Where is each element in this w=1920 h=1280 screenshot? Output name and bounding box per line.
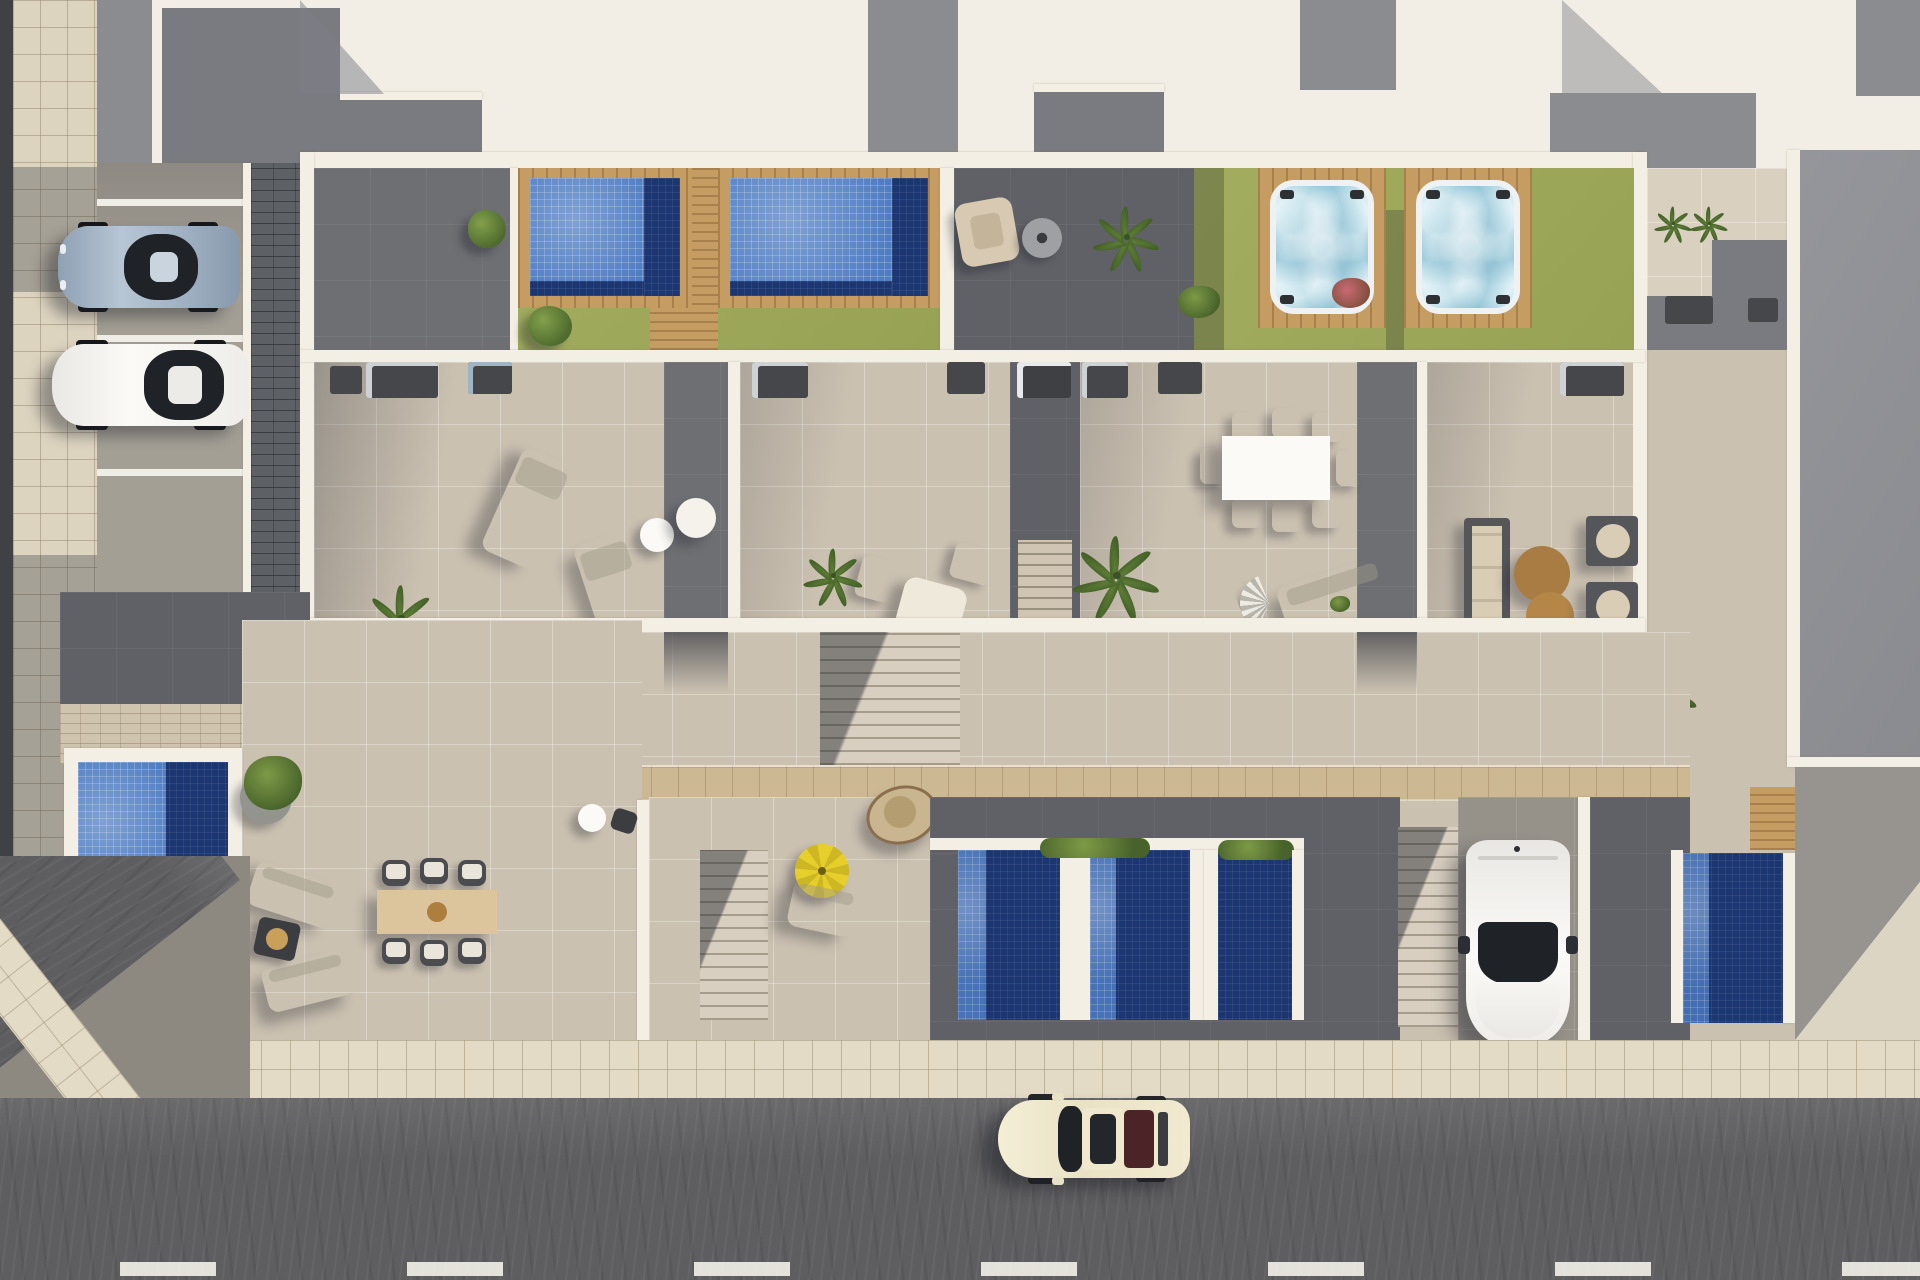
mosaic-pool-1-deep [644, 178, 680, 296]
car-rear-hatch-line [1478, 856, 1558, 860]
table-centerpiece [427, 902, 447, 922]
patio-palm [1095, 205, 1157, 267]
sofa-cushions [1472, 526, 1502, 632]
outdoor-kitchen [1017, 362, 1071, 398]
patio-lounge-cushion [969, 212, 1004, 251]
outdoor-kitchen [330, 366, 362, 394]
unit1-garden-wall [510, 168, 518, 350]
pouf-round [676, 498, 716, 538]
jacuzzi-lawn-shadow [1194, 168, 1224, 350]
mosaic-pool-2-deep [892, 178, 928, 296]
fire-table-tray [266, 928, 288, 950]
alley-1-wall [728, 362, 740, 632]
outdoor-kitchen [1158, 362, 1202, 394]
wicker-chair [458, 860, 486, 886]
fire-bowl [1022, 218, 1062, 258]
alley-1 [664, 362, 728, 632]
jacuzzi-headrest [1350, 190, 1364, 199]
car-mirror [1458, 936, 1470, 954]
dining-chair [1232, 498, 1262, 528]
central-staircase [820, 632, 960, 765]
palm-core [1708, 222, 1711, 225]
pool-divider-wall [1671, 850, 1683, 1023]
bistro-table-white [578, 804, 606, 832]
parking-stall-line-3 [97, 469, 243, 476]
right-gray-roof [1800, 150, 1920, 757]
jacuzzi-headrest [1496, 190, 1510, 199]
lawn-tree [528, 306, 572, 346]
plunge-pool-4-edge [1683, 853, 1709, 1023]
right-wood-steps [1750, 787, 1800, 850]
units-left-wall [300, 152, 314, 632]
armchair-cushion [1596, 524, 1630, 558]
wicker-chair [382, 860, 410, 886]
dining-chair [1336, 450, 1362, 486]
parasol-pole-dot [818, 867, 826, 875]
dining-chair [1312, 498, 1342, 528]
garden-terrace-wall [300, 350, 1645, 362]
pool-divider-wall [1190, 850, 1204, 1020]
car-windshield [1058, 1106, 1084, 1172]
egg-chair-cushion [884, 796, 916, 828]
car-rear-grille [1158, 1112, 1168, 1166]
corner-unit-east-wall [637, 800, 649, 1040]
street-dashed-line [120, 1262, 1920, 1276]
car-roof-panel [168, 366, 202, 404]
right-roof-bottom-wall [1787, 757, 1920, 767]
plunge-pool-3 [1218, 850, 1292, 1020]
driveway-east-wall [1578, 797, 1590, 1040]
lawn-steps-wood [650, 308, 692, 350]
unit1-patio [314, 168, 510, 350]
car-rear-window-red [1124, 1110, 1154, 1168]
car-antenna [1514, 846, 1520, 852]
wicker-chair [458, 938, 486, 964]
courtyard-staircase [700, 850, 768, 1020]
units-top-wall [300, 152, 1645, 168]
dining-chair [1272, 502, 1302, 532]
car-roof-panel [150, 252, 178, 282]
roof-corner-gray [1856, 0, 1920, 96]
pool-divider-wall [1060, 850, 1090, 1020]
car-headlight [60, 244, 66, 254]
roof-edge-wall-2 [1034, 84, 1164, 92]
pool-divider-wall [1204, 850, 1218, 1020]
palm-core [1672, 222, 1675, 225]
alley-3-shadow-stub [1357, 632, 1417, 692]
car-headlight [60, 280, 66, 290]
dining-chair [1272, 408, 1302, 438]
aerial-render-canvas [0, 0, 1920, 1280]
roof-notch-gray [1300, 0, 1396, 90]
tiled-sidewalk [0, 1040, 1920, 1098]
jacuzzi-headrest [1426, 190, 1440, 199]
vine-over-wall [1040, 838, 1150, 858]
corner-composite [0, 856, 250, 1098]
car-mirror [1052, 1177, 1064, 1185]
driveway-car-white [1464, 840, 1572, 1045]
neighbour-palm-1 [1656, 206, 1690, 240]
wicker-chair [382, 938, 410, 964]
outdoor-kitchen [468, 362, 512, 394]
terrace-3-palm [1076, 540, 1156, 610]
plunge-pool-1-edge [958, 850, 986, 1020]
roof-gap-shadow-left [96, 0, 152, 170]
outdoor-kitchen [947, 362, 985, 394]
wicker-chair [420, 858, 448, 884]
alley-1-shadow-stub [664, 632, 728, 692]
side-table-round [640, 518, 674, 552]
parked-car-white [52, 338, 248, 432]
dining-table-long [1222, 436, 1330, 500]
car-mirror [1052, 1093, 1064, 1101]
car-windshield [1478, 922, 1558, 984]
pool-divider-wall [1292, 850, 1304, 1020]
jacuzzi-headrest [1496, 295, 1510, 304]
outdoor-kitchen [1082, 362, 1128, 398]
pool-stairs-wood [692, 168, 718, 350]
jacuzzi-headrest [1426, 295, 1440, 304]
jacuzzi-gap-shadow [1386, 210, 1404, 350]
palm-core [1124, 234, 1130, 240]
jacuzzi-2 [1416, 180, 1520, 314]
plunge-pool-2-edge [1090, 850, 1116, 1020]
pool-divider-wall [1783, 853, 1795, 1023]
mosaic-pool-1-ledge [530, 281, 644, 296]
mosaic-pool-2-ledge [730, 281, 892, 296]
roof-gap-shadow-mid [868, 0, 958, 166]
vine-over-pool [1218, 840, 1294, 860]
terrace-2-palm [806, 550, 860, 600]
dark-paver-path [251, 163, 300, 620]
outdoor-kitchen [1560, 362, 1624, 396]
outdoor-kitchen [752, 362, 808, 398]
palm-core [1113, 572, 1121, 579]
jacuzzi-headrest [1280, 295, 1294, 304]
jacuzzi-headrest [1280, 190, 1294, 199]
street-road [0, 1098, 1920, 1280]
street-car-cream [998, 1096, 1190, 1182]
car-mirror [1566, 936, 1578, 954]
wicker-chair [420, 940, 448, 966]
car-sunroof [1090, 1114, 1116, 1164]
neighbour-palm-2 [1692, 206, 1726, 240]
parked-car-silver [58, 220, 240, 314]
pair-divider-wall [940, 168, 954, 350]
alley-3-wall [1417, 362, 1427, 632]
parking-stall-line-1 [97, 199, 243, 206]
neighbour-kitchen-1 [1665, 296, 1713, 324]
driveway-staircase [1398, 827, 1458, 1027]
right-roof-edge-wall [1787, 150, 1800, 757]
unit1-round-tree [468, 210, 506, 248]
outdoor-kitchen [366, 362, 438, 398]
neighbour-kitchen-2 [1748, 298, 1778, 322]
